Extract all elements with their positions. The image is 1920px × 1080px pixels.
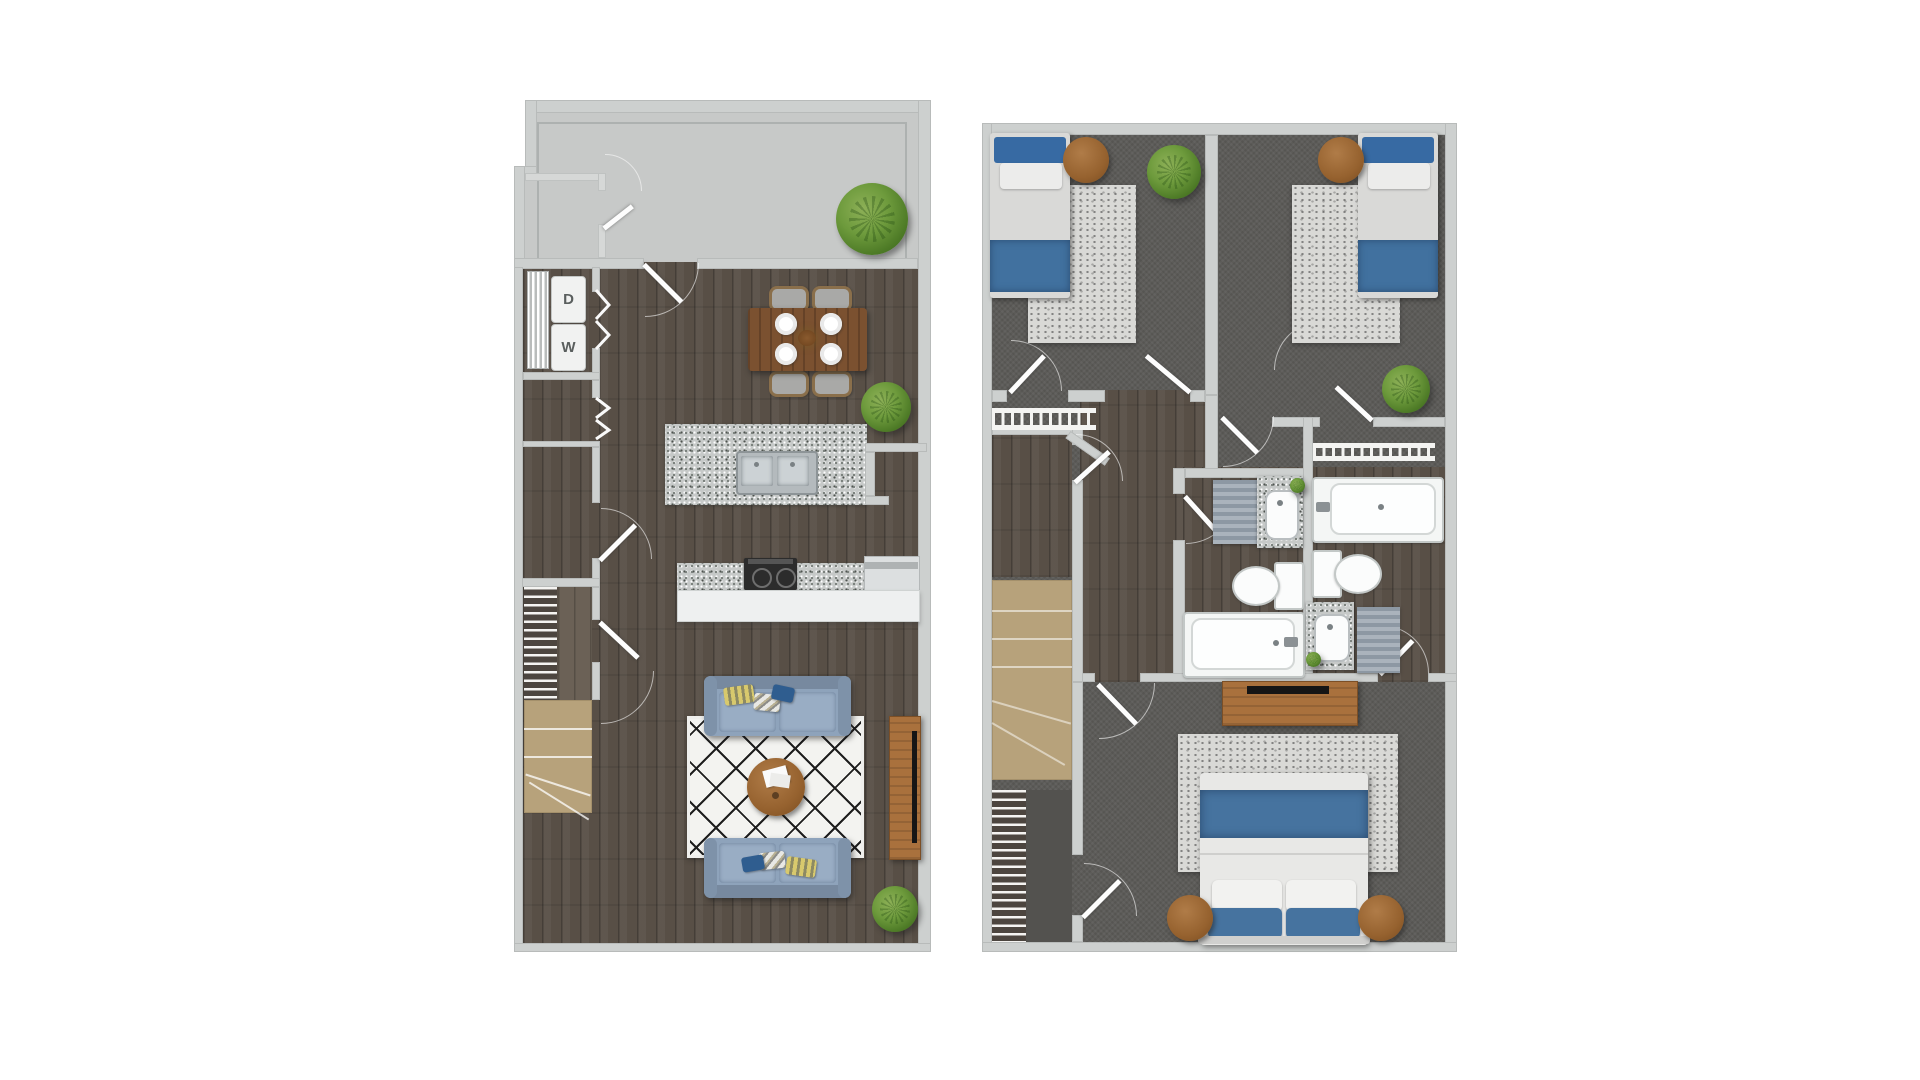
bath-bottom-wall-c — [1428, 673, 1457, 682]
plate — [775, 313, 797, 335]
sofa-arm — [704, 838, 717, 898]
bedroom2-closet-rod — [1313, 444, 1435, 460]
bedroom2-west-wall — [1205, 395, 1218, 470]
first-floor-bottom-wall — [514, 943, 931, 952]
patio-storage-top-wall — [525, 173, 605, 181]
washer-unit: W — [551, 324, 586, 371]
bathB-tub-faucet — [1316, 502, 1330, 512]
dining-chair — [769, 371, 809, 397]
master-tv — [1247, 686, 1329, 694]
bed-pillow-blue — [1208, 908, 1282, 938]
bed-throw-blue — [1358, 240, 1438, 292]
stair-line — [992, 638, 1072, 640]
master-nightstand-left — [1167, 895, 1213, 941]
bathB-tub-drain — [1378, 504, 1384, 510]
bedroom1-south-wall-c — [1190, 390, 1205, 402]
bedroom2-south-wall-b — [1373, 417, 1445, 427]
dining-plant — [861, 382, 911, 432]
stair-treads-upper — [524, 587, 557, 700]
plate — [775, 343, 797, 365]
bathA-vanity-plant — [1290, 478, 1305, 493]
bedroom1-south-wall-b — [1068, 390, 1105, 402]
dryer-label: D — [563, 291, 574, 308]
washer-label: W — [561, 339, 575, 356]
plate — [820, 313, 842, 335]
laundry-wall-stub-bottom — [592, 348, 600, 375]
patio-storage-wall-stub-upper — [598, 173, 606, 191]
bed-throw-blue — [1200, 790, 1368, 838]
sofa-bottom — [704, 838, 851, 898]
stair-line — [524, 756, 592, 758]
stair-side-wall-upper — [592, 587, 600, 620]
bathA-tub-interior — [1191, 618, 1295, 670]
bed-pillow-white — [1368, 163, 1430, 189]
stairwell-void — [1026, 790, 1072, 942]
second-floor-right-wall — [1445, 123, 1457, 952]
stair-line — [524, 728, 592, 730]
bedroom2-plant — [1382, 365, 1430, 413]
bedroom2-nightstand — [1318, 137, 1364, 183]
bed-throw-blue — [990, 240, 1070, 292]
closet-a-wall-stub — [592, 380, 600, 398]
floor-plan-canvas: D W — [0, 0, 1920, 1080]
master-bed — [1200, 773, 1368, 945]
laundry-bifold-door — [594, 290, 612, 350]
closet-a-top-wall — [523, 372, 600, 380]
sofa-back — [704, 885, 851, 898]
stair-line — [992, 610, 1072, 612]
bed-pillow-blue — [994, 137, 1066, 163]
stair-landing-strip — [558, 587, 592, 700]
plate — [820, 343, 842, 365]
bathB-faucet — [1327, 624, 1333, 630]
tv-screen — [912, 731, 917, 843]
bathA-rug — [1213, 480, 1258, 544]
sofa-arm — [838, 676, 851, 736]
bathB-vanity-plant — [1306, 652, 1321, 667]
bed-pillow-blue — [1286, 908, 1360, 938]
linen-closet-floor — [992, 435, 1072, 577]
bedroom2-bed — [1358, 133, 1438, 298]
coffee-table-papers — [769, 773, 791, 789]
bathA-faucet — [1277, 500, 1283, 506]
pantry-wall-bottom — [865, 496, 889, 505]
cooktop-control-strip — [748, 559, 793, 564]
closet-b-wall-lower — [592, 558, 600, 580]
closet-a-bottom-wall — [523, 441, 600, 447]
sink-drain — [790, 462, 795, 467]
laundry-closet-louver-doors — [527, 271, 549, 369]
bed-pillow-blue — [1362, 137, 1434, 163]
hall-bath-wall-upper — [1173, 468, 1185, 494]
bathA-toilet-bowl — [1232, 566, 1280, 606]
front-wall-left-segment — [514, 258, 644, 269]
master-west-wall-b — [1072, 915, 1083, 942]
stair-top-wall — [522, 578, 600, 587]
closet-b-wall-upper — [592, 447, 600, 503]
closet-a-bifold-door — [594, 398, 612, 440]
living-room-plant — [872, 886, 918, 932]
sink-drain — [754, 462, 759, 467]
refrigerator-handle-band — [864, 562, 918, 569]
sofa-top — [704, 676, 851, 736]
patio-left-wall-upper — [525, 100, 537, 170]
stair-railing — [992, 409, 1096, 429]
bedroom1-bed — [990, 133, 1070, 298]
pantry-wall-top — [865, 443, 927, 452]
stair-line — [992, 666, 1072, 668]
bed-pillow-white — [1000, 163, 1062, 189]
master-nightstand-right — [1358, 895, 1404, 941]
sink-basin-left — [741, 456, 773, 486]
pantry-wall-side — [865, 452, 875, 496]
patio-top-wall — [525, 100, 922, 113]
kitchen-counter-front — [677, 590, 920, 622]
laundry-wall-stub-top — [592, 267, 600, 292]
bed-fold-line — [1200, 853, 1368, 855]
front-wall-right-segment — [697, 258, 918, 269]
dryer-unit: D — [551, 276, 586, 323]
bathA-tub-faucet — [1284, 637, 1298, 647]
first-floor-left-wall — [514, 267, 523, 952]
hall-west-wall-b — [1072, 480, 1083, 682]
patio-plant — [836, 183, 908, 255]
bathA-basin — [1265, 490, 1299, 540]
sofa-arm — [838, 838, 851, 898]
patio-left-wall-lower — [514, 166, 525, 267]
bedroom1-plant — [1147, 145, 1201, 199]
sink-basin-right — [777, 456, 809, 486]
sofa-arm — [704, 676, 717, 736]
burner — [752, 568, 772, 588]
burner — [776, 568, 796, 588]
coffee-table-decor — [772, 792, 779, 799]
bed-headboard — [1198, 936, 1370, 944]
bedroom1-south-wall-a — [992, 390, 1007, 402]
bathB-rug — [1357, 607, 1400, 673]
bedroom-divider-wall — [1205, 135, 1218, 395]
bathB-toilet-bowl — [1334, 554, 1382, 594]
dining-chair — [812, 371, 852, 397]
stair-side-wall-lower — [592, 662, 600, 700]
table-centerpiece — [798, 330, 816, 346]
bathA-tub-drain — [1273, 640, 1279, 646]
master-west-wall-a — [1072, 682, 1083, 855]
stair-lower-flight-treads — [992, 790, 1026, 942]
bedroom1-nightstand — [1063, 137, 1109, 183]
